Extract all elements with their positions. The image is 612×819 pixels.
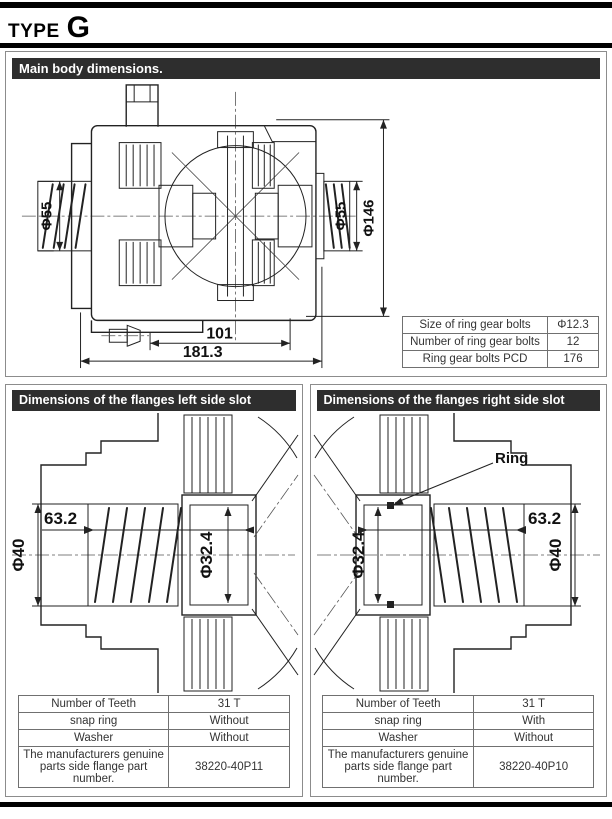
bevel-gear-arcs [252,417,298,689]
dimension-slot-depth: 63.2 [42,509,254,534]
right-flange-table: Number of Teeth 31 T snap ring With Wash… [322,695,594,788]
left-flange-section: Dimensions of the flanges left side slot [5,384,303,797]
spec-value: Φ12.3 [548,317,599,334]
table-row: Size of ring gear bolts Φ12.3 [403,317,599,334]
flange-sections-row: Dimensions of the flanges left side slot [5,384,607,797]
dim-label-left-dia: Φ55 [40,202,56,231]
main-section-header: Main body dimensions. [12,58,600,79]
dim-label-slot-depth: 63.2 [44,509,77,528]
right-flange-header: Dimensions of the flanges right side slo… [317,390,601,411]
main-body-section: Main body dimensions. [5,51,607,377]
ring-gear-bolt-table: Size of ring gear bolts Φ12.3 Number of … [402,316,599,368]
spec-value: 176 [548,351,599,368]
dim-label-inner-length: 101 [206,325,233,342]
bottom-divider-bar [0,802,612,807]
flange-bolt [101,325,149,346]
dim-label-shaft-dia: Φ40 [9,539,28,572]
spec-value: 38220-40P10 [473,747,593,788]
left-flange-header: Dimensions of the flanges left side slot [12,390,296,411]
spec-label: The manufacturers genuine parts side fla… [18,747,169,788]
ring-callout: Ring [393,450,528,505]
spec-label: snap ring [18,713,169,730]
table-row: snap ring With [323,713,594,730]
spec-label: snap ring [323,713,474,730]
right-flange-section: Dimensions of the flanges right side slo… [310,384,608,797]
dim-label-overall-length: 181.3 [183,344,223,361]
spec-label: Ring gear bolts PCD [403,351,548,368]
spec-label: Number of Teeth [323,696,474,713]
spec-value: Without [169,730,289,747]
spec-value: 12 [548,334,599,351]
spec-label: Washer [18,730,169,747]
dim-label-shaft-dia: Φ40 [546,539,565,572]
spec-label: Number of Teeth [18,696,169,713]
spec-label: Size of ring gear bolts [403,317,548,334]
dimension-left-diameter: Φ55 [38,181,63,251]
spec-value: 31 T [169,696,289,713]
spec-value: 38220-40P11 [169,747,289,788]
table-row: Ring gear bolts PCD 176 [403,351,599,368]
table-row: The manufacturers genuine parts side fla… [323,747,594,788]
spec-label: Washer [323,730,474,747]
table-row: snap ring Without [18,713,289,730]
spec-value: Without [473,730,593,747]
table-row: Washer Without [18,730,289,747]
table-row: The manufacturers genuine parts side fla… [18,747,289,788]
ring-gear-flange-tab [126,85,158,127]
spec-value: Without [169,713,289,730]
dim-label-slot-depth: 63.2 [528,509,561,528]
type-label: TYPE [8,21,60,43]
dimension-slot-depth: 63.2 [358,509,561,534]
left-flange-table: Number of Teeth 31 T snap ring Without W… [18,695,290,788]
spec-label: Number of ring gear bolts [403,334,548,351]
dim-label-right-dia: Φ55 [334,202,350,231]
page-title: TYPE G [0,8,612,43]
table-row: Number of Teeth 31 T [323,696,594,713]
clutch-packs [380,415,428,691]
right-flange-drawing: Ring Φ32.4 63.2 Φ40 [311,413,606,693]
left-flange-drawing: Φ32.4 63.2 Φ40 [6,413,301,693]
spec-value: 31 T [473,696,593,713]
dim-label-outer-dia: Φ146 [362,200,378,237]
main-drawing-area: Φ55 Φ55 Φ146 [6,82,606,376]
type-value: G [67,11,90,45]
dim-label-slot-dia: Φ32.4 [197,531,216,579]
spec-value: With [473,713,593,730]
table-row: Number of ring gear bolts 12 [403,334,599,351]
housing-profile [41,413,158,693]
spec-label: The manufacturers genuine parts side fla… [323,747,474,788]
title-underline-bar [0,43,612,48]
dimension-overall-length: 181.3 [81,267,322,368]
clutch-packs [119,143,274,286]
dim-label-slot-dia: Φ32.4 [349,531,368,579]
table-row: Number of Teeth 31 T [18,696,289,713]
ring-label: Ring [495,450,528,467]
table-row: Washer Without [323,730,594,747]
